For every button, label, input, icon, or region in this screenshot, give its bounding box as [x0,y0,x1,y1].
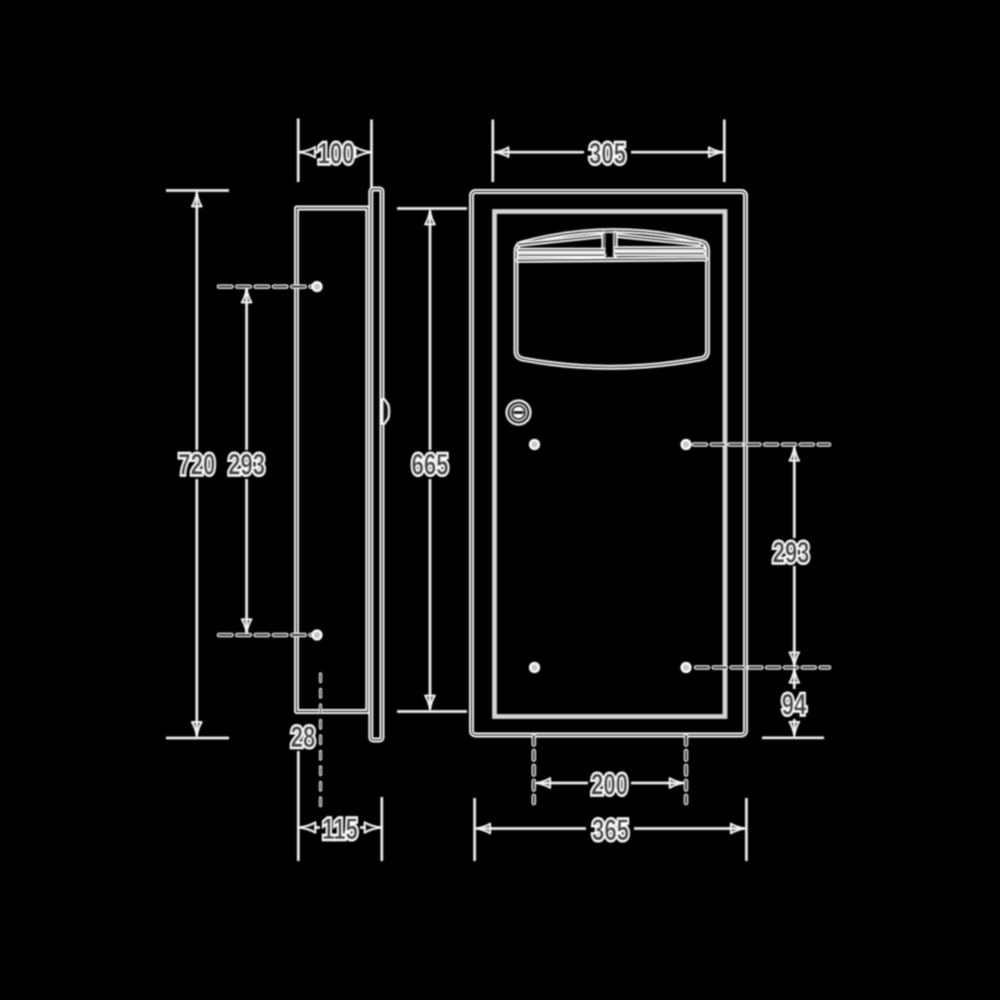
svg-text:94: 94 [782,687,807,721]
svg-text:115: 115 [322,812,358,846]
svg-text:28: 28 [291,720,316,754]
svg-text:293: 293 [772,535,809,569]
svg-text:293: 293 [228,447,265,481]
svg-text:100: 100 [317,136,354,170]
svg-text:305: 305 [589,136,626,170]
svg-text:365: 365 [592,813,629,847]
svg-text:200: 200 [591,767,628,801]
svg-text:720: 720 [178,447,215,481]
svg-text:665: 665 [411,447,448,481]
